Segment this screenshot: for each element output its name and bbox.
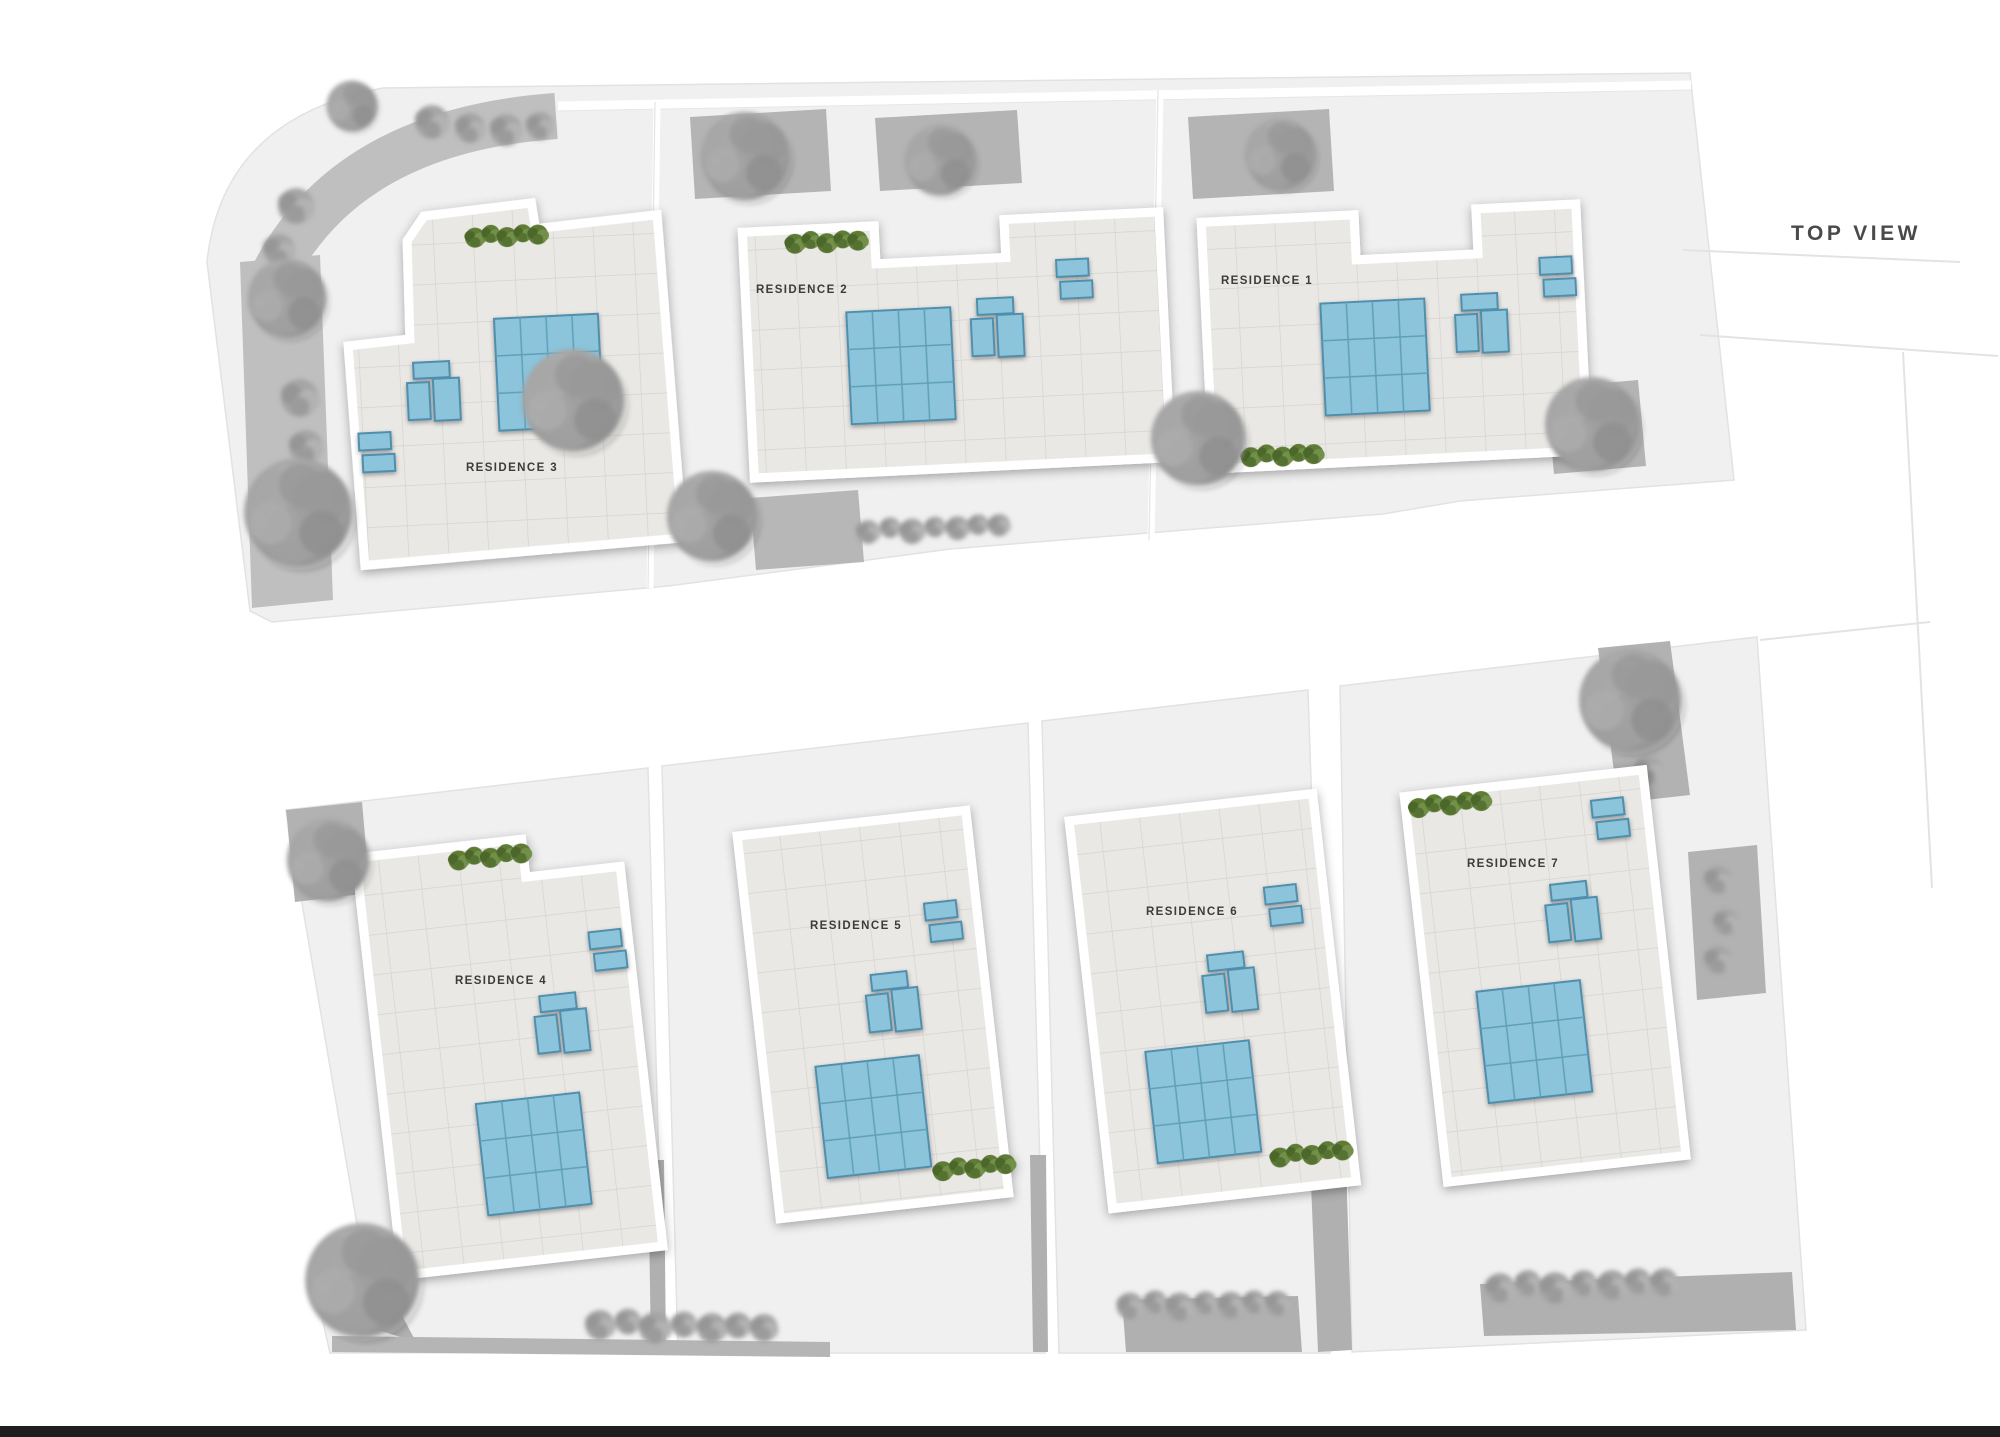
residence-1-label: RESIDENCE 1 bbox=[1221, 275, 1313, 287]
gap-strip-5-6 bbox=[1030, 1155, 1048, 1352]
residence-7-roof bbox=[1404, 770, 1686, 1182]
residence-4-roof bbox=[356, 829, 663, 1276]
residence-7-parapet bbox=[1404, 770, 1686, 1182]
residence-3-label: RESIDENCE 3 bbox=[466, 462, 558, 474]
page-title: TOP VIEW bbox=[1791, 222, 1921, 245]
residence-6-label: RESIDENCE 6 bbox=[1146, 906, 1238, 918]
residence-5-label: RESIDENCE 5 bbox=[810, 920, 902, 932]
driveway-pad bbox=[750, 490, 864, 570]
site-plan-canvas: RESIDENCE 1 RESIDENCE 2 RESIDENCE 3 RESI… bbox=[0, 0, 2000, 1437]
solar-array bbox=[1320, 299, 1429, 416]
residence-2-label: RESIDENCE 2 bbox=[756, 284, 848, 296]
residence-6-roof bbox=[1069, 793, 1357, 1208]
residence-4-label: RESIDENCE 4 bbox=[455, 975, 547, 987]
site-plan-page: RESIDENCE 1 RESIDENCE 2 RESIDENCE 3 RESI… bbox=[0, 0, 2000, 1437]
footer-bar bbox=[0, 1426, 2000, 1437]
residence-7-label: RESIDENCE 7 bbox=[1467, 858, 1559, 870]
